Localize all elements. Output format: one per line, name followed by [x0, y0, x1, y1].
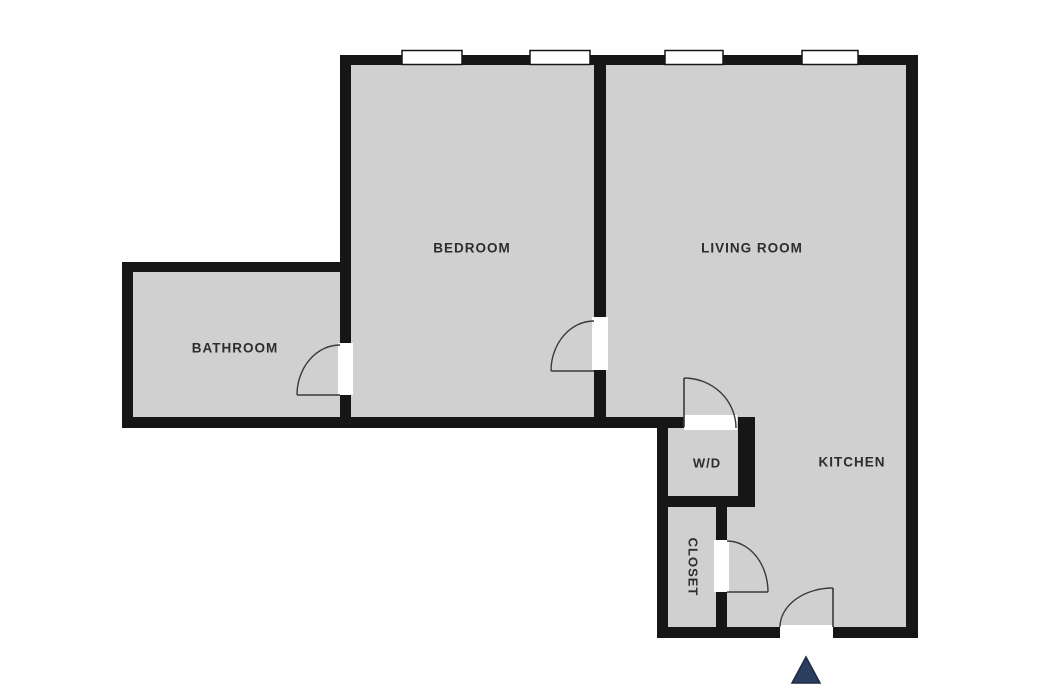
entrance-triangle-icon: [792, 657, 820, 683]
room-label-closet: CLOSET: [686, 538, 701, 597]
room-label-living-room: LIVING ROOM: [701, 241, 803, 256]
opening-bathroom-door: [338, 343, 353, 395]
room-label-bedroom: BEDROOM: [433, 241, 511, 256]
wall-wd-right: [738, 417, 755, 507]
opening-closet-door: [714, 540, 729, 592]
room-label-bathroom: BATHROOM: [192, 341, 279, 356]
opening-entry-door: [780, 625, 833, 640]
opening-wd-door: [684, 415, 737, 430]
room-label-kitchen: KITCHEN: [819, 455, 886, 470]
window-2-window: [530, 51, 590, 65]
room-label-wd: W/D: [693, 455, 721, 470]
floor-plan-svg: BEDROOMLIVING ROOMBATHROOMW/DKITCHENCLOS…: [0, 0, 1039, 689]
window-1-window: [402, 51, 462, 65]
wall-divider-bedroom-living: [594, 55, 606, 428]
opening-bedroom-door: [592, 317, 608, 370]
wall-main-horizontal: [122, 417, 684, 428]
wall-wd-closet-left: [657, 417, 668, 638]
wall-right: [906, 55, 918, 638]
floor-plan: BEDROOMLIVING ROOMBATHROOMW/DKITCHENCLOS…: [0, 0, 1039, 689]
window-4-window: [802, 51, 858, 65]
wall-bathroom-left: [122, 262, 133, 428]
window-3-window: [665, 51, 723, 65]
wall-bathroom-top: [122, 262, 351, 272]
